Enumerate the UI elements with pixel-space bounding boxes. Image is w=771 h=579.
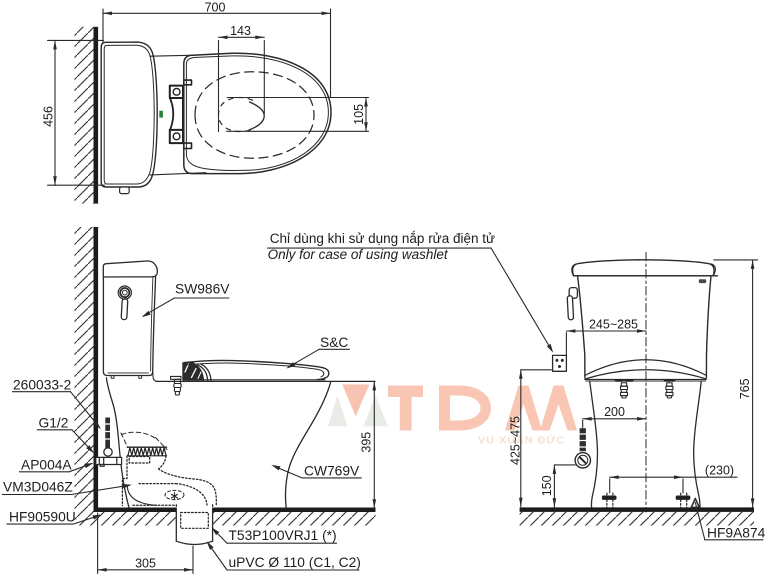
svg-text:G1/2: G1/2 — [39, 416, 69, 431]
svg-text:700: 700 — [205, 1, 226, 15]
svg-text:425~475: 425~475 — [509, 416, 523, 465]
svg-text:SW986V: SW986V — [175, 282, 230, 297]
svg-text:AP004A: AP004A — [21, 458, 72, 473]
svg-text:uPVC Ø 110 (C1, C2): uPVC Ø 110 (C1, C2) — [229, 555, 361, 570]
svg-text:VM3D046Z: VM3D046Z — [3, 480, 73, 495]
svg-text:HF9A874: HF9A874 — [707, 526, 766, 541]
svg-text:150: 150 — [540, 475, 554, 496]
svg-text:CW769V: CW769V — [304, 464, 360, 479]
svg-text:HF90590U: HF90590U — [9, 510, 76, 525]
svg-text:S&C: S&C — [320, 335, 348, 350]
svg-text:(230): (230) — [705, 463, 734, 477]
svg-text:105: 105 — [352, 104, 366, 125]
svg-text:765: 765 — [738, 378, 752, 399]
svg-text:Chỉ dùng khi sử dụng nắp rửa đ: Chỉ dùng khi sử dụng nắp rửa điện tử — [270, 231, 495, 246]
svg-text:395: 395 — [360, 432, 374, 453]
svg-text:143: 143 — [230, 24, 251, 38]
svg-text:Only for case of using washlet: Only for case of using washlet — [268, 247, 449, 262]
svg-text:200: 200 — [604, 405, 625, 419]
svg-text:245~285: 245~285 — [589, 317, 638, 331]
svg-text:T53P100VRJ1 (*): T53P100VRJ1 (*) — [229, 528, 337, 543]
svg-text:456: 456 — [41, 106, 55, 127]
svg-text:305: 305 — [135, 557, 156, 571]
svg-text:260033-2: 260033-2 — [13, 378, 71, 393]
